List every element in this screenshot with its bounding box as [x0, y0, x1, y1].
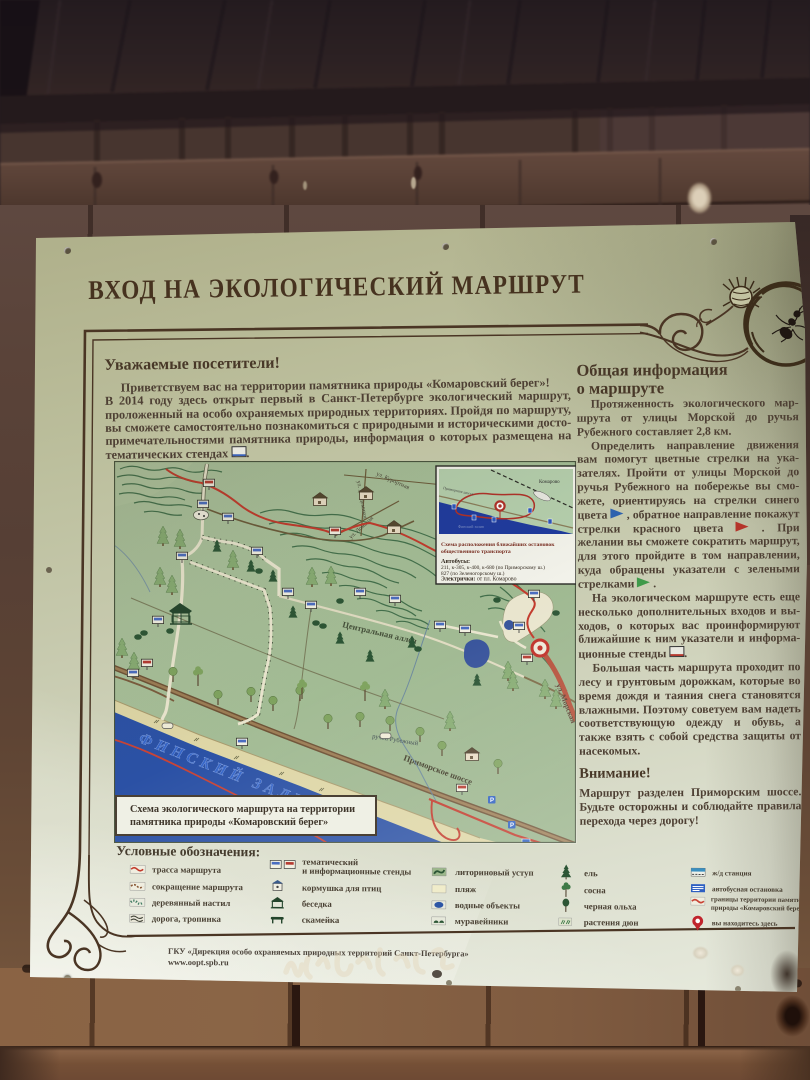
svg-text:Финский залив: Финский залив	[458, 524, 484, 529]
svg-text:трасса маршрута: трасса маршрута	[152, 864, 222, 875]
svg-text:беседка: беседка	[302, 899, 333, 909]
svg-text:и информационные стенды: и информационные стенды	[302, 866, 411, 877]
svg-text:природы «Комаровский берег»: природы «Комаровский берег»	[711, 905, 807, 913]
svg-text:дорога, тропинка: дорога, тропинка	[152, 913, 222, 924]
svg-text:границы территории памятника: границы территории памятника	[711, 896, 807, 904]
svg-text:211, к-305, к-400, к-680 (по П: 211, к-305, к-400, к-680 (по Приморскому…	[441, 564, 545, 571]
svg-text:ель: ель	[584, 868, 598, 878]
svg-text:ж/д станция: ж/д станция	[712, 869, 752, 877]
svg-text:P: P	[490, 798, 494, 804]
svg-text:Схема расположения ближайших о: Схема расположения ближайших остановок	[441, 541, 555, 548]
svg-text:растения дюн: растения дюн	[584, 917, 639, 927]
svg-text:пляж: пляж	[455, 884, 477, 894]
svg-text:Автобусы:: Автобусы:	[441, 558, 470, 565]
svg-text:автобусная остановка: автобусная остановка	[712, 885, 783, 894]
svg-text:P: P	[510, 823, 514, 829]
svg-text:литориновый уступ: литориновый уступ	[455, 867, 534, 878]
svg-text:водные объекты: водные объекты	[455, 900, 520, 911]
svg-text:Комарово: Комарово	[539, 480, 560, 485]
svg-text:общественного транспорта: общественного транспорта	[441, 548, 511, 555]
svg-text:сокращение маршрута: сокращение маршрута	[152, 881, 244, 892]
svg-text:Условные обозначения:: Условные обозначения:	[116, 843, 260, 859]
svg-text:кормушка для птиц: кормушка для птиц	[302, 883, 381, 894]
svg-text:скамейка: скамейка	[302, 915, 340, 925]
svg-text:сосна: сосна	[584, 885, 606, 895]
svg-text:деревянный настил: деревянный настил	[152, 897, 231, 908]
svg-text:вы находитесь здесь: вы находитесь здесь	[712, 919, 778, 928]
svg-text:черная ольха: черная ольха	[584, 901, 637, 911]
svg-text:муравейники: муравейники	[455, 916, 509, 926]
svg-text:Электрички: от пл. Комарово: Электрички: от пл. Комарово	[441, 577, 517, 583]
